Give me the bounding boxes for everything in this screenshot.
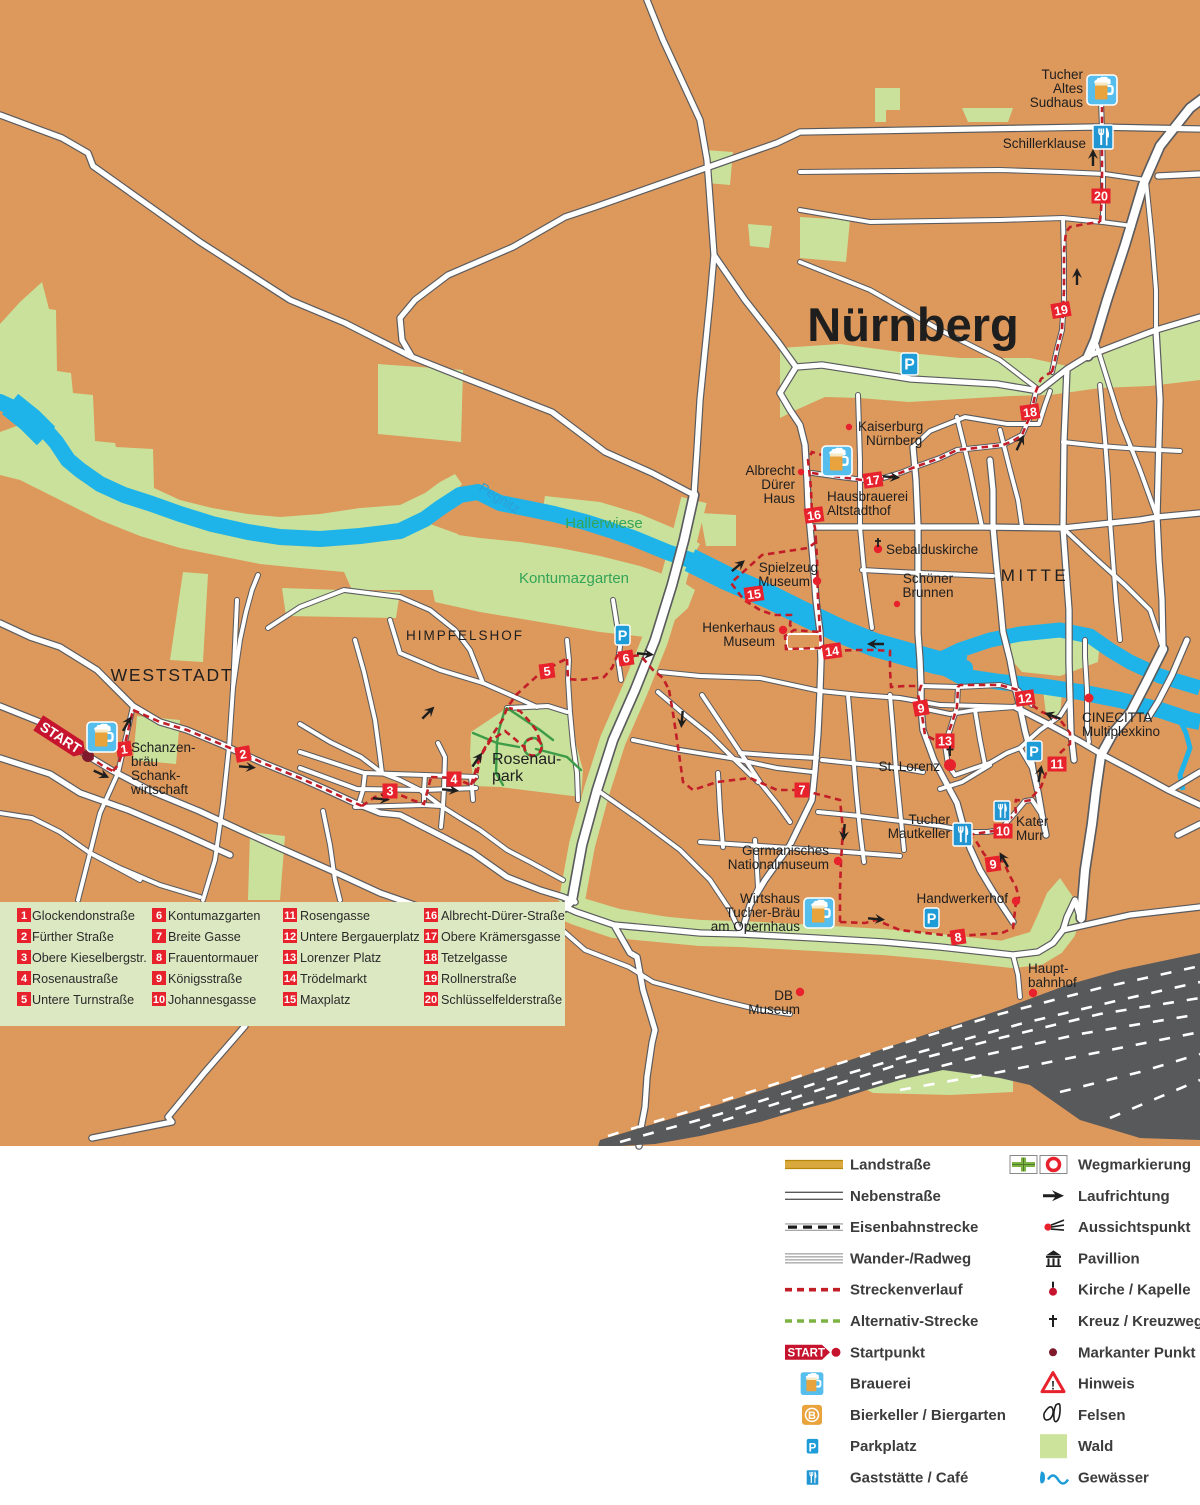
svg-text:Wegmarkierung: Wegmarkierung: [1078, 1157, 1191, 1174]
svg-text:St. Lorenz: St. Lorenz: [878, 759, 940, 774]
svg-text:Museum: Museum: [723, 634, 775, 649]
svg-text:Startpunkt: Startpunkt: [850, 1344, 925, 1361]
svg-text:15: 15: [746, 587, 762, 603]
svg-text:Schillerklause: Schillerklause: [1003, 136, 1086, 151]
svg-text:10: 10: [996, 825, 1010, 839]
svg-text:10: 10: [153, 994, 165, 1006]
svg-text:Brauerei: Brauerei: [850, 1376, 911, 1393]
svg-text:Kontumazgarten: Kontumazgarten: [519, 570, 629, 587]
svg-text:Schlüsselfelderstraße: Schlüsselfelderstraße: [441, 993, 562, 1007]
svg-text:Nationalmuseum: Nationalmuseum: [728, 857, 829, 872]
svg-text:4: 4: [21, 973, 28, 985]
svg-text:P: P: [904, 357, 915, 374]
svg-text:Schanzen-: Schanzen-: [131, 740, 196, 755]
svg-text:Glockendonstraße: Glockendonstraße: [32, 909, 135, 923]
svg-text:Bierkeller / Biergarten: Bierkeller / Biergarten: [850, 1407, 1006, 1424]
svg-text:Spielzeug: Spielzeug: [759, 560, 818, 575]
svg-text:7: 7: [156, 931, 162, 943]
svg-text:11: 11: [284, 910, 296, 922]
svg-text:wirtschaft: wirtschaft: [130, 782, 188, 797]
svg-text:Haupt-: Haupt-: [1028, 961, 1069, 976]
svg-text:1: 1: [21, 910, 27, 922]
svg-text:Eisenbahnstrecke: Eisenbahnstrecke: [850, 1219, 978, 1236]
svg-text:Felsen: Felsen: [1078, 1407, 1126, 1424]
svg-text:Germanisches: Germanisches: [742, 843, 829, 858]
svg-text:2: 2: [21, 931, 27, 943]
svg-text:Schank-: Schank-: [131, 768, 181, 783]
svg-text:P: P: [809, 1443, 817, 1455]
svg-text:Brunnen: Brunnen: [902, 585, 953, 600]
svg-text:Mautkeller: Mautkeller: [888, 826, 951, 841]
svg-text:CINECITTA: CINECITTA: [1082, 710, 1152, 725]
svg-text:Rollnerstraße: Rollnerstraße: [441, 972, 517, 986]
svg-text:Hallerwiese: Hallerwiese: [565, 515, 643, 532]
svg-text:8: 8: [156, 952, 162, 964]
svg-text:Tucher-Bräu: Tucher-Bräu: [725, 905, 800, 920]
svg-text:Tetzelgasse: Tetzelgasse: [441, 951, 508, 965]
svg-text:13: 13: [284, 952, 296, 964]
svg-text:bräu: bräu: [131, 754, 158, 769]
svg-text:P: P: [927, 912, 937, 928]
svg-text:3: 3: [21, 952, 27, 964]
svg-text:Breite Gasse: Breite Gasse: [168, 930, 241, 944]
svg-text:Murr: Murr: [1016, 828, 1044, 843]
svg-text:Tucher: Tucher: [1041, 67, 1083, 82]
svg-text:9: 9: [156, 973, 162, 985]
svg-text:Kreuz / Kreuzweg: Kreuz / Kreuzweg: [1078, 1313, 1200, 1330]
svg-text:Hausbrauerei: Hausbrauerei: [827, 489, 908, 504]
svg-text:Altes: Altes: [1053, 81, 1083, 96]
svg-text:Untere Bergauerplatz: Untere Bergauerplatz: [300, 930, 420, 944]
svg-text:4: 4: [451, 773, 458, 787]
svg-text:14: 14: [284, 973, 297, 985]
svg-text:Obere Krämersgasse: Obere Krämersgasse: [441, 930, 561, 944]
svg-text:DB: DB: [774, 988, 793, 1003]
svg-text:START: START: [788, 1348, 825, 1360]
svg-text:Wander-/Radweg: Wander-/Radweg: [850, 1250, 971, 1267]
svg-text:Landstraße: Landstraße: [850, 1157, 931, 1174]
svg-text:17: 17: [425, 931, 437, 943]
svg-text:Alternativ-Strecke: Alternativ-Strecke: [850, 1313, 978, 1330]
svg-text:B: B: [808, 1410, 816, 1422]
svg-text:Multiplexkino: Multiplexkino: [1082, 724, 1160, 739]
svg-text:18: 18: [1022, 405, 1038, 421]
svg-text:20: 20: [425, 994, 437, 1006]
svg-text:Parkplatz: Parkplatz: [850, 1438, 917, 1455]
svg-text:Laufrichtung: Laufrichtung: [1078, 1188, 1170, 1205]
svg-text:12: 12: [1017, 691, 1033, 707]
svg-text:Rosenaustraße: Rosenaustraße: [32, 972, 118, 986]
svg-text:18: 18: [425, 952, 437, 964]
svg-text:14: 14: [824, 644, 840, 660]
svg-text:bahnhof: bahnhof: [1028, 975, 1077, 990]
svg-text:P: P: [1029, 745, 1039, 761]
svg-text:5: 5: [21, 994, 27, 1006]
svg-text:Maxplatz: Maxplatz: [300, 993, 350, 1007]
svg-text:19: 19: [1053, 302, 1069, 318]
svg-text:Nebenstraße: Nebenstraße: [850, 1188, 941, 1205]
svg-text:Handwerkerhof: Handwerkerhof: [916, 891, 1008, 906]
svg-text:Haus: Haus: [763, 491, 795, 506]
svg-text:Kirche / Kapelle: Kirche / Kapelle: [1078, 1282, 1191, 1299]
svg-text:HIMPFELSHOF: HIMPFELSHOF: [406, 628, 524, 643]
svg-text:Museum: Museum: [748, 1002, 800, 1017]
svg-text:Streckenverlauf: Streckenverlauf: [850, 1282, 964, 1299]
svg-text:Kater: Kater: [1016, 814, 1049, 829]
svg-text:12: 12: [284, 931, 296, 943]
svg-text:Altstadthof: Altstadthof: [827, 503, 891, 518]
svg-text:Markanter Punkt: Markanter Punkt: [1078, 1344, 1196, 1361]
svg-text:am Opernhaus: am Opernhaus: [711, 919, 801, 934]
svg-text:MITTE: MITTE: [1001, 566, 1070, 585]
svg-text:Dürer: Dürer: [761, 477, 795, 492]
svg-text:Sudhaus: Sudhaus: [1030, 95, 1084, 110]
svg-text:7: 7: [799, 784, 806, 798]
svg-text:16: 16: [806, 508, 822, 524]
svg-text:Untere Turnstraße: Untere Turnstraße: [32, 993, 134, 1007]
svg-text:Schöner: Schöner: [903, 571, 954, 586]
svg-text:Henkerhaus: Henkerhaus: [702, 620, 775, 635]
svg-text:3: 3: [387, 785, 394, 799]
svg-text:Sebalduskirche: Sebalduskirche: [886, 542, 978, 557]
svg-text:19: 19: [425, 973, 437, 985]
svg-text:Kontumazgarten: Kontumazgarten: [168, 909, 260, 923]
svg-text:Frauentormauer: Frauentormauer: [168, 951, 258, 965]
svg-text:WESTSTADT: WESTSTADT: [111, 665, 234, 685]
svg-text:Gaststätte / Café: Gaststätte / Café: [850, 1470, 968, 1487]
svg-text:20: 20: [1094, 190, 1108, 204]
svg-text:Königsstraße: Königsstraße: [168, 972, 242, 986]
svg-text:Hinweis: Hinweis: [1078, 1376, 1135, 1393]
svg-text:Kaiserburg: Kaiserburg: [858, 419, 923, 434]
svg-text:Albrecht: Albrecht: [745, 463, 795, 478]
svg-text:Aussichtspunkt: Aussichtspunkt: [1078, 1219, 1191, 1236]
svg-text:Nürnberg: Nürnberg: [866, 433, 922, 448]
svg-text:Pavillion: Pavillion: [1078, 1250, 1140, 1267]
svg-text:17: 17: [865, 473, 881, 489]
svg-text:!: !: [1051, 1379, 1055, 1393]
svg-text:Gewässer: Gewässer: [1078, 1470, 1149, 1487]
svg-text:Albrecht-Dürer-Straße: Albrecht-Dürer-Straße: [441, 909, 565, 923]
svg-text:15: 15: [284, 994, 296, 1006]
svg-text:6: 6: [156, 910, 162, 922]
svg-text:Fürther Straße: Fürther Straße: [32, 930, 114, 944]
svg-text:11: 11: [1050, 758, 1063, 772]
svg-text:Nürnberg: Nürnberg: [807, 298, 1019, 351]
svg-text:Museum: Museum: [758, 574, 810, 589]
svg-text:Lorenzer Platz: Lorenzer Platz: [300, 951, 381, 965]
svg-text:Obere Kieselbergstr.: Obere Kieselbergstr.: [32, 951, 147, 965]
svg-text:P: P: [618, 629, 628, 645]
svg-text:Rosengasse: Rosengasse: [300, 909, 370, 923]
svg-text:Trödelmarkt: Trödelmarkt: [300, 972, 367, 986]
svg-text:park: park: [492, 768, 524, 785]
svg-text:Tucher: Tucher: [908, 812, 950, 827]
svg-text:Johannesgasse: Johannesgasse: [168, 993, 256, 1007]
svg-text:Wirtshaus: Wirtshaus: [740, 891, 800, 906]
svg-text:16: 16: [425, 910, 437, 922]
svg-text:Rosenau-: Rosenau-: [492, 751, 561, 768]
svg-text:Wald: Wald: [1078, 1438, 1113, 1455]
